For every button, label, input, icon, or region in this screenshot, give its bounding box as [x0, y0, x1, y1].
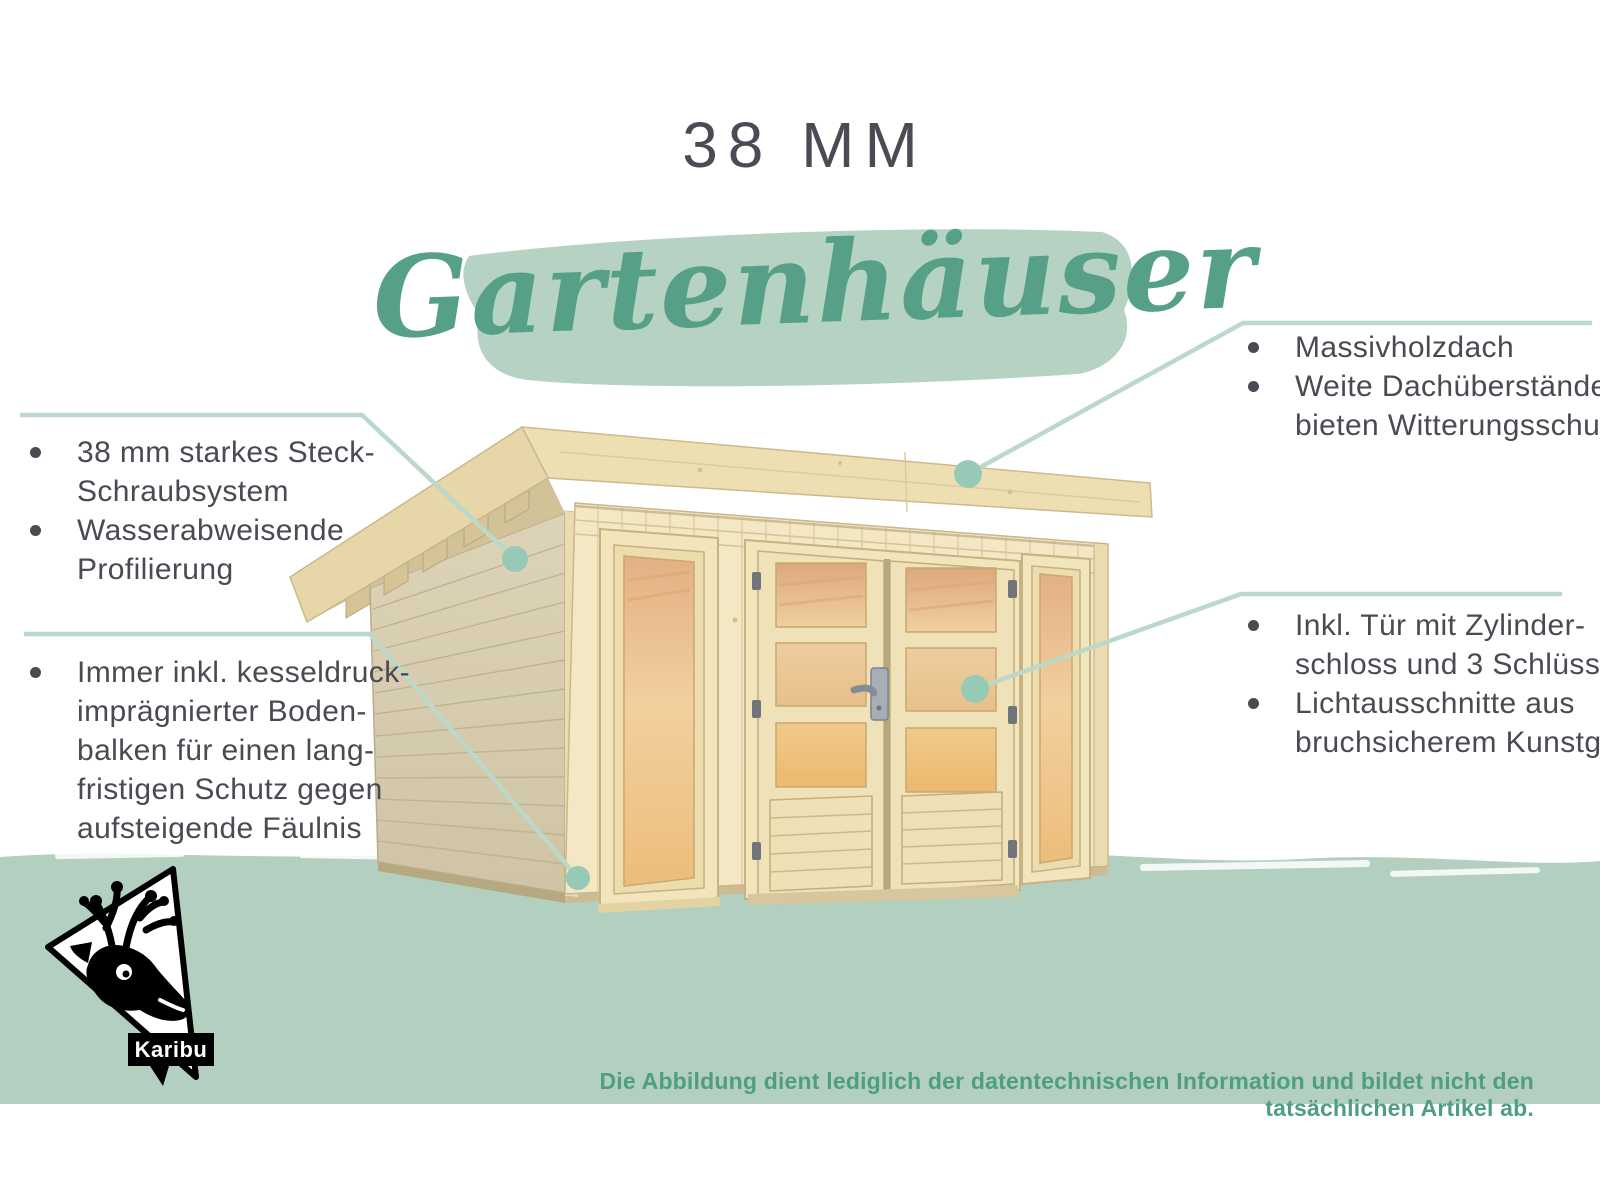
- bullet-icon: [1248, 698, 1259, 709]
- callout-text: schloss und 3 Schlüsseln: [1295, 645, 1600, 684]
- callout-text: bieten Witterungsschutz: [1295, 406, 1600, 445]
- callout-text: balken für einen lang-: [77, 731, 374, 770]
- karibu-logo-label: Karibu: [128, 1033, 214, 1066]
- poster: 38 MM Gartenhäuser 38 mm starkes Steck- …: [0, 0, 1600, 1200]
- callout-text: aufsteigende Fäulnis: [77, 809, 362, 848]
- bullet-icon: [30, 447, 41, 458]
- callout-dot-door: [961, 675, 989, 703]
- right-window-glass: [1040, 574, 1072, 863]
- callout-dot-base: [566, 866, 590, 890]
- callout-text: 38 mm starkes Steck-: [77, 433, 375, 472]
- callout-text: imprägnierter Boden-: [77, 692, 367, 731]
- left-window-glass: [624, 556, 694, 886]
- callout-top-left: 38 mm starkes Steck- Schraubsystem Wasse…: [22, 433, 375, 589]
- left-window: [598, 529, 720, 913]
- right-window: [1022, 554, 1090, 884]
- callout-bottom-right: Inkl. Tür mit Zylinder- schloss und 3 Sc…: [1240, 606, 1600, 762]
- right-edge-trim: [1094, 543, 1108, 867]
- callout-dot-roof-right: [954, 460, 982, 488]
- disclaimer-text: Die Abbildung dient lediglich der datent…: [534, 1068, 1534, 1122]
- callout-bottom-left: Immer inkl. kesseldruck- imprägnierter B…: [22, 653, 410, 848]
- callout-text: Weite Dachüberstände: [1295, 367, 1600, 406]
- bullet-icon: [30, 667, 41, 678]
- callout-text: Inkl. Tür mit Zylinder-: [1295, 606, 1585, 645]
- callout-text: Wasserabweisende: [77, 511, 344, 550]
- callout-text: bruchsicherem Kunstglas: [1295, 723, 1600, 762]
- callout-text: Profilierung: [77, 550, 234, 589]
- bullet-icon: [1248, 620, 1259, 631]
- callout-dot-wall-left: [502, 546, 528, 572]
- bullet-icon: [1248, 381, 1259, 392]
- bullet-icon: [30, 525, 41, 536]
- callout-top-right: Massivholzdach Weite Dachüberstände biet…: [1240, 328, 1600, 445]
- callout-text: Immer inkl. kesseldruck-: [77, 653, 410, 692]
- callout-text: fristigen Schutz gegen: [77, 770, 383, 809]
- size-label: 38 MM: [0, 108, 1600, 182]
- double-door: [745, 540, 1020, 905]
- door-gap: [884, 559, 890, 893]
- roof-fascia-front: [522, 427, 1152, 517]
- callout-text: Schraubsystem: [77, 472, 289, 511]
- callout-text: Massivholzdach: [1295, 328, 1514, 367]
- callout-text: Lichtausschnitte aus: [1295, 684, 1575, 723]
- bullet-icon: [1248, 342, 1259, 353]
